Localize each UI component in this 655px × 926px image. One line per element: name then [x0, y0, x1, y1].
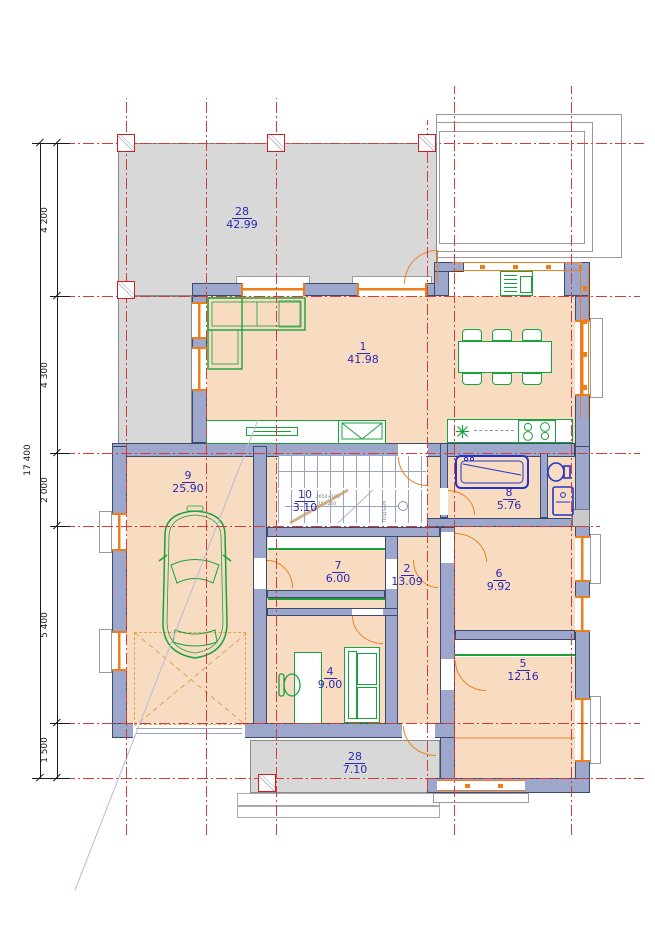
window-living-west-2	[192, 347, 207, 391]
sill-room5-south	[433, 793, 529, 803]
dining-chair	[492, 329, 512, 341]
dim-line-segments	[57, 143, 58, 778]
sink-symbol-icon	[456, 425, 469, 438]
room-label-terrace-top: 28 42.99	[210, 206, 274, 232]
terrace-step-1	[237, 793, 440, 806]
dining-chair	[522, 373, 542, 385]
sofa-cushion	[357, 687, 377, 719]
dining-chair	[492, 373, 512, 385]
room-label-corridor: 7 6.00	[306, 560, 370, 586]
dim-label-1500: 1 500	[40, 720, 52, 780]
wardrobe-line-south	[268, 598, 385, 600]
window-living-west-1	[192, 302, 207, 339]
car-icon	[151, 503, 239, 675]
column-marker	[418, 134, 436, 152]
dim-label-4200: 4 200	[40, 190, 52, 250]
window-room5-east	[575, 698, 590, 762]
window-room6-east-2	[575, 596, 590, 632]
sill-kitchen-east	[590, 318, 603, 398]
toilet-icon	[546, 461, 572, 483]
fridge-door	[520, 276, 532, 293]
wall-garage-divider	[253, 446, 267, 738]
stove-icon	[518, 420, 556, 443]
entry-porch-outline-inner	[439, 131, 585, 244]
floor-plan-canvas: 2650×180 15×250 ПОДЪЕМ	[0, 0, 655, 926]
room-label-hall: 2 13.09	[375, 563, 439, 589]
opening-room5-door	[441, 659, 454, 690]
terrace-top-area	[118, 143, 437, 296]
window-room5-south	[437, 780, 525, 791]
dim-label-4300: 4 300	[40, 345, 52, 405]
fridge-hatch	[504, 275, 517, 292]
dim-label-total: 17 400	[23, 430, 35, 490]
window-garage-west-1	[112, 513, 127, 551]
grid-axis-v2	[206, 98, 207, 835]
garage-door-line-1	[136, 728, 242, 729]
opening-room6-door	[441, 532, 454, 563]
room-label-terrace-bottom: 28 7.10	[323, 751, 387, 777]
wall-room6-south	[455, 630, 575, 640]
window-garage-west-2	[112, 631, 127, 671]
grid-axis-h5	[64, 723, 640, 724]
dining-chair	[462, 373, 482, 385]
column-marker	[117, 134, 135, 152]
opening-study-door	[352, 609, 383, 615]
terrace-step-2	[237, 806, 440, 818]
grid-axis-v6	[571, 86, 572, 835]
dim-label-5400: 5 400	[40, 595, 52, 655]
dining-chair	[462, 329, 482, 341]
room-label-stairs: 10 3.10	[273, 489, 337, 515]
sill-room6-east	[590, 534, 601, 584]
wall-corridor-south	[267, 590, 385, 598]
room-label-room5: 5 12.16	[491, 658, 555, 684]
entry-door-leaf	[437, 250, 438, 284]
room-label-study: 4 9.00	[298, 666, 362, 692]
room-label-bathroom: 8 5.76	[477, 487, 541, 513]
room-label-garage: 9 25.90	[156, 470, 220, 496]
grid-axis-v1	[126, 98, 127, 835]
sill-garage-west-2	[99, 629, 112, 673]
entry-glazing-band-top	[452, 262, 582, 271]
opening-bath-door	[440, 488, 448, 515]
pier-east	[572, 509, 590, 527]
sill-room5-east	[590, 696, 601, 764]
grid-axis-h1	[64, 143, 644, 144]
wall-stair-south	[267, 527, 440, 537]
bathtub-icon	[455, 455, 529, 489]
corner-sofa-icon	[207, 297, 307, 371]
sill-garage-west-1	[99, 511, 112, 553]
fridge-icon	[500, 271, 533, 296]
tv-screen-line	[253, 431, 291, 432]
grid-axis-v3	[276, 98, 277, 835]
grid-axis-h4	[64, 526, 600, 527]
entry-glazing-band-east	[580, 266, 589, 418]
grid-axis-h3	[64, 453, 640, 454]
column-marker	[258, 774, 276, 792]
column-marker	[267, 134, 285, 152]
grid-axis-v5	[454, 86, 455, 835]
grid-axis-v4	[427, 120, 428, 790]
dining-chair	[522, 329, 542, 341]
wall-garage-west	[112, 446, 127, 738]
wardrobe-front-line	[455, 654, 575, 656]
window-living-north-2	[357, 283, 427, 296]
column-marker	[117, 281, 135, 299]
grid-axis-h2	[64, 296, 640, 297]
grid-axis-h6	[64, 778, 644, 779]
window-living-north-1	[241, 283, 305, 296]
tv-icon	[246, 427, 298, 436]
counter-dash-line	[474, 430, 514, 431]
dining-table	[458, 341, 552, 373]
room-label-room6: 6 9.92	[467, 568, 531, 594]
terrace-side-strip	[118, 296, 192, 446]
wardrobe-line-north	[268, 548, 385, 550]
dim-label-2000: 2 000	[40, 460, 52, 520]
fireplace-icon	[338, 420, 386, 444]
opening-stair-door	[398, 444, 428, 456]
room-label-living: 1 41.98	[331, 341, 395, 367]
window-room6-east-1	[575, 536, 590, 582]
opening-corridor-west	[254, 558, 266, 589]
garage-door-line-2	[136, 733, 242, 734]
